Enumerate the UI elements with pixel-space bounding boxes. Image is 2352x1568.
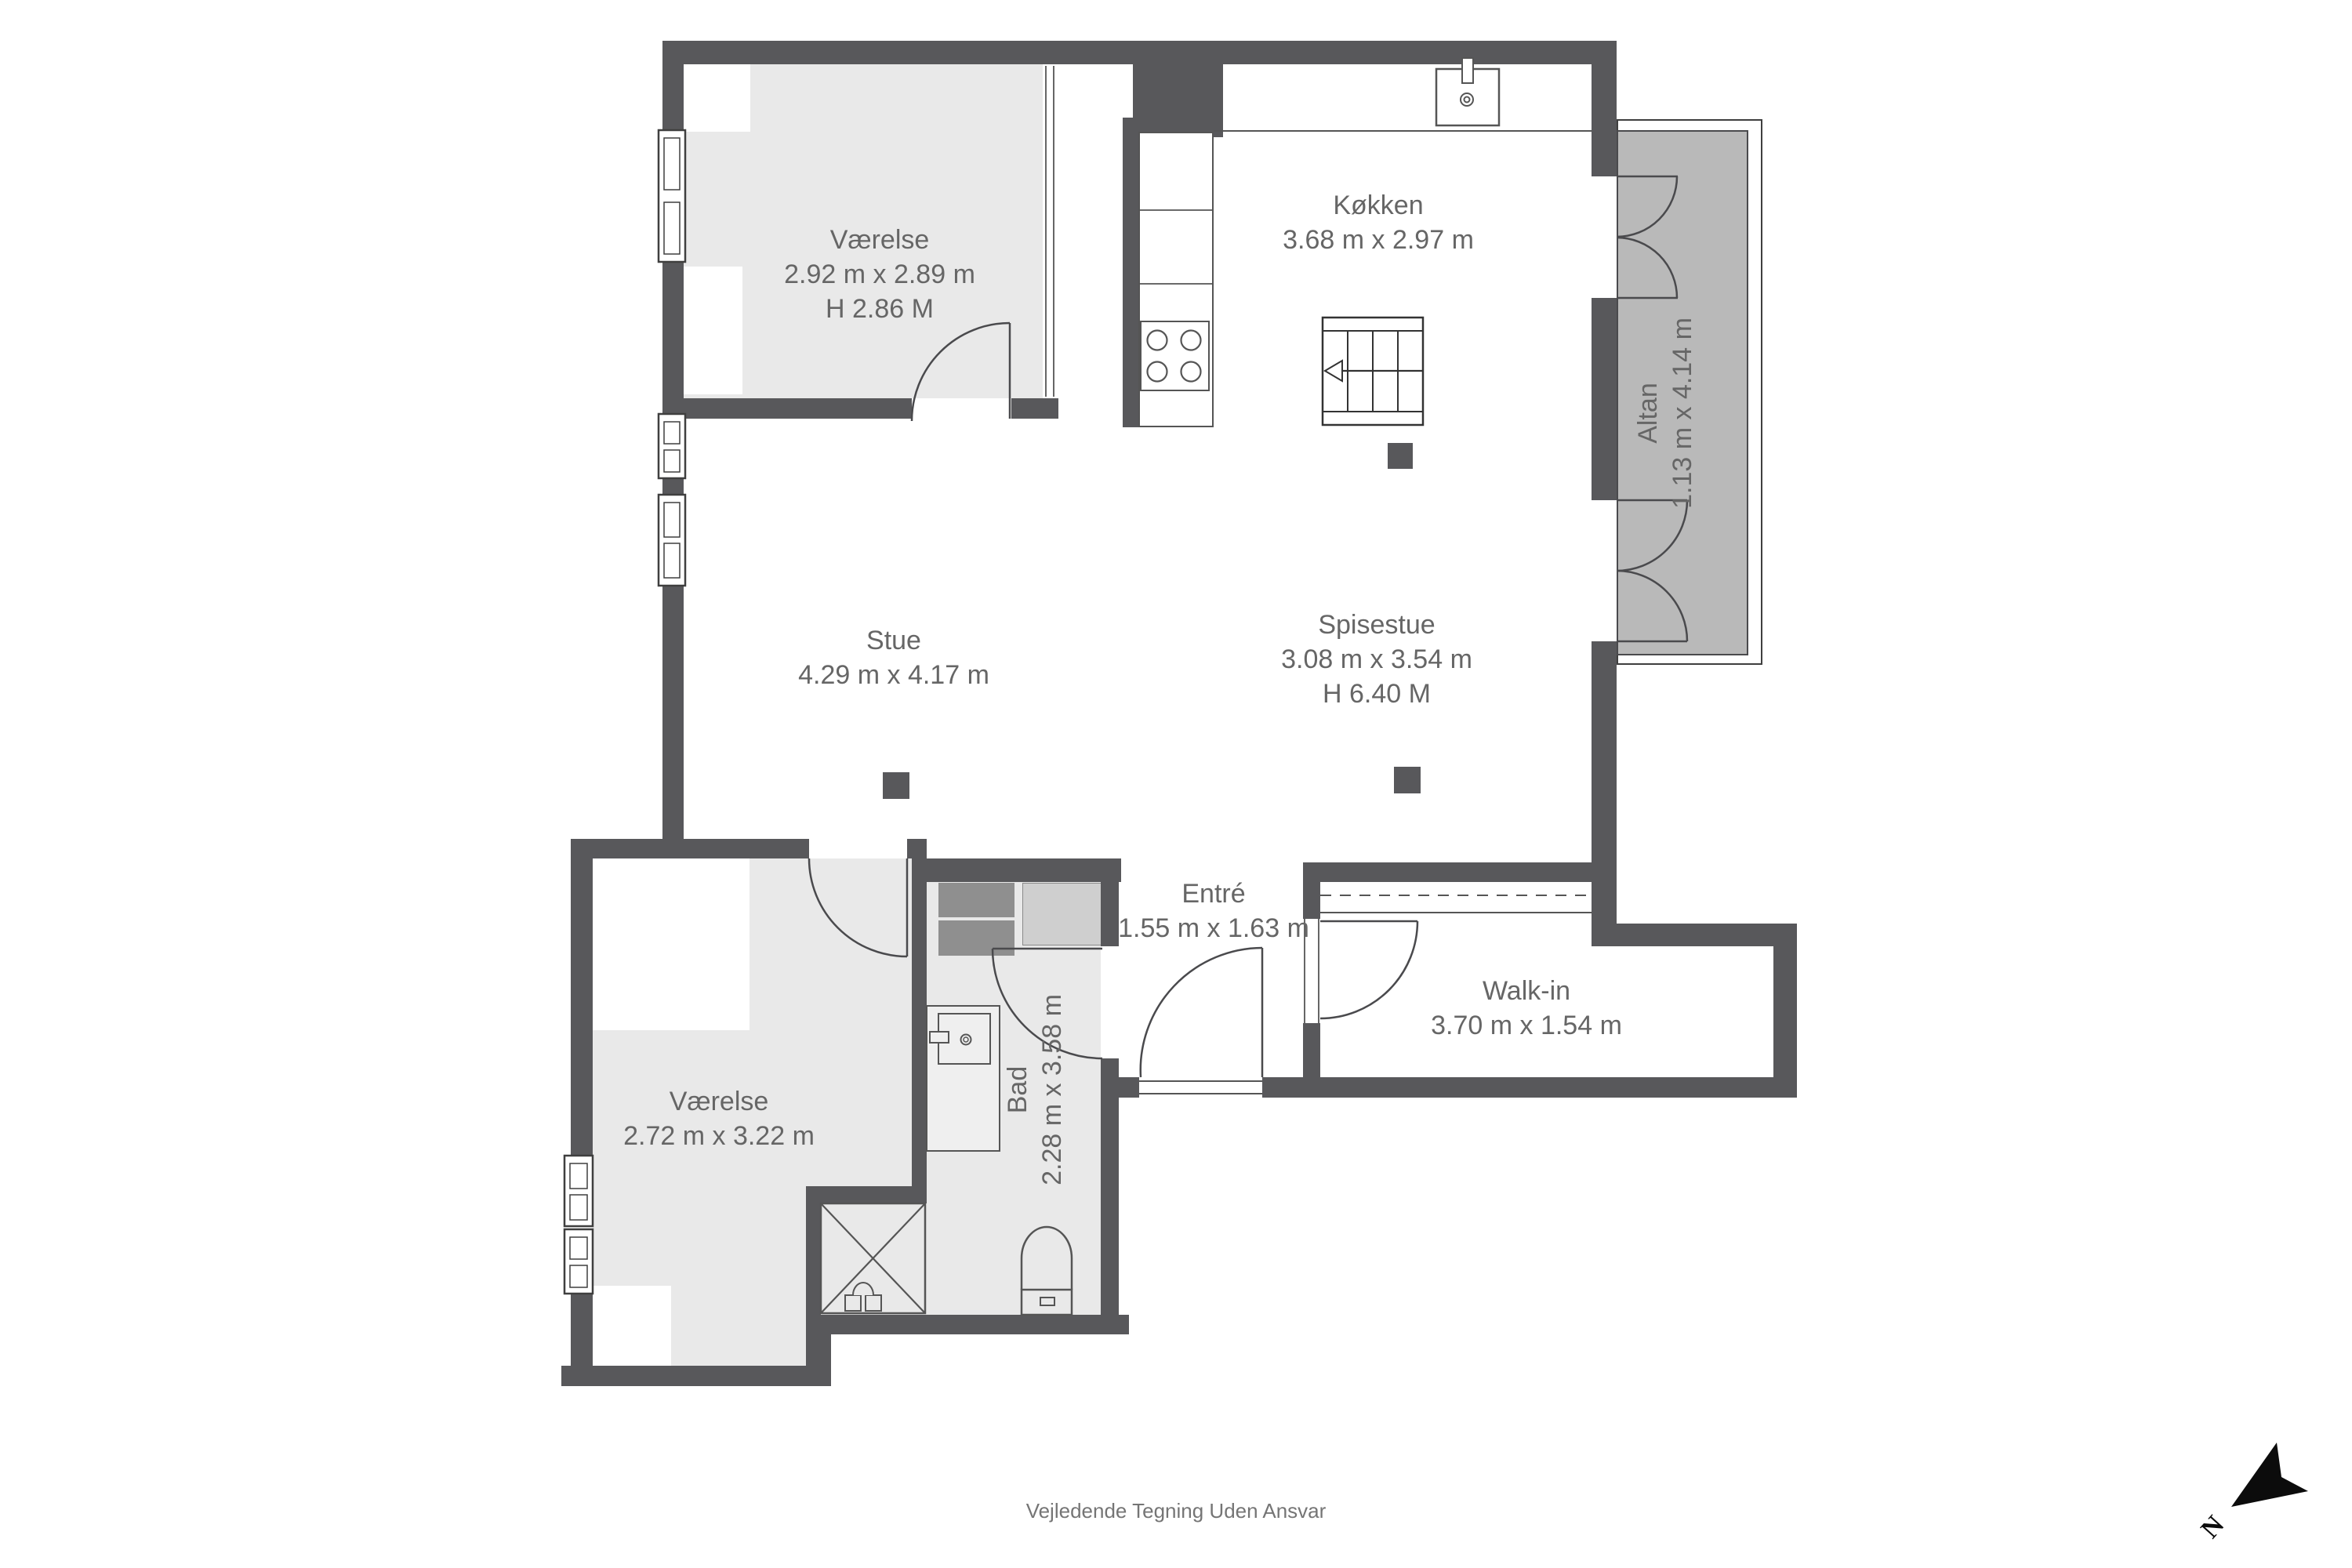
room-dims: 2.92 m x 2.89 m xyxy=(723,257,1036,292)
room-label-entre: Entré 1.55 m x 1.63 m xyxy=(1096,877,1331,946)
room-dims: 3.08 m x 3.54 m xyxy=(1220,642,1534,677)
room-label-vaerelse-bottom: Værelse 2.72 m x 3.22 m xyxy=(562,1084,876,1153)
room-label-bad: Bad 2.28 m x 3.58 m xyxy=(988,972,1082,1207)
room-name: Værelse xyxy=(723,223,1036,257)
column xyxy=(1394,767,1421,793)
wall-segment xyxy=(662,477,684,496)
furniture-patch xyxy=(593,858,750,1030)
room-label-altan: Altan 1.13 m x 4.14 m xyxy=(1618,296,1712,531)
wall-segment xyxy=(1101,1058,1119,1334)
wall-segment xyxy=(912,858,1121,882)
room-fill-bad-shower-nook xyxy=(821,1203,927,1315)
wall-segment xyxy=(1101,1077,1139,1098)
shaft-block xyxy=(938,883,1014,917)
shaft-block xyxy=(938,920,1014,956)
wall-segment xyxy=(806,1186,927,1203)
room-label-stue: Stue 4.29 m x 4.17 m xyxy=(737,623,1051,692)
furniture-patch xyxy=(593,1286,671,1366)
room-name: Stue xyxy=(737,623,1051,658)
room-dims: 2.72 m x 3.22 m xyxy=(562,1119,876,1153)
wall-segment xyxy=(1592,298,1617,500)
room-ceiling: H 2.86 M xyxy=(723,292,1036,326)
column xyxy=(1388,443,1413,469)
room-name: Værelse xyxy=(562,1084,876,1119)
wall-segment xyxy=(662,260,684,416)
wall-segment xyxy=(1011,398,1058,419)
room-dims: 3.68 m x 2.97 m xyxy=(1221,223,1535,257)
room-dims: 1.55 m x 1.63 m xyxy=(1096,911,1331,946)
room-name: Altan xyxy=(1631,383,1665,444)
wall-segment xyxy=(806,1315,1129,1334)
disclaimer-text: Vejledende Tegning Uden Ansvar xyxy=(0,1499,2352,1523)
room-label-vaerelse-top: Værelse 2.92 m x 2.89 m H 2.86 M xyxy=(723,223,1036,326)
room-name: Walk-in xyxy=(1370,974,1683,1008)
wall-segment xyxy=(1123,118,1138,427)
kitchen-sink xyxy=(1214,58,1592,131)
wall-segment xyxy=(1592,641,1617,946)
sliding-door xyxy=(1043,64,1057,398)
wall-segment xyxy=(1262,1077,1797,1098)
kitchen-counter xyxy=(1138,132,1214,427)
room-name: Entré xyxy=(1096,877,1331,911)
wall-segment xyxy=(907,839,927,858)
room-label-spisestue: Spisestue 3.08 m x 3.54 m H 6.40 M xyxy=(1220,608,1534,711)
front-door-threshold xyxy=(1139,1077,1262,1098)
wall-segment xyxy=(1592,924,1797,946)
floor-plan-page: { "rooms": { "vaerelse_top": {"name": "V… xyxy=(0,0,2352,1568)
wall-segment xyxy=(1592,63,1617,176)
wall-segment xyxy=(806,1186,821,1335)
room-name: Køkken xyxy=(1221,188,1535,223)
room-dims: 3.70 m x 1.54 m xyxy=(1370,1008,1683,1043)
wall-segment xyxy=(1133,41,1223,137)
room-dims: 1.13 m x 4.14 m xyxy=(1665,318,1700,509)
wall-segment xyxy=(571,839,809,858)
room-dims: 4.29 m x 4.17 m xyxy=(737,658,1051,692)
room-dims: 2.28 m x 3.58 m xyxy=(1035,994,1069,1185)
stairs xyxy=(1323,318,1423,425)
room-name: Bad xyxy=(1000,1066,1035,1114)
compass-icon: N xyxy=(2195,1443,2308,1544)
wall-segment xyxy=(912,858,927,1190)
wall-segment xyxy=(662,584,684,839)
room-name: Spisestue xyxy=(1220,608,1534,642)
column xyxy=(883,772,909,799)
wall-segment xyxy=(1303,1023,1320,1077)
wall-segment xyxy=(1773,924,1797,1098)
closet-lines xyxy=(1320,895,1592,913)
wall-segment xyxy=(1303,862,1592,882)
room-ceiling: H 6.40 M xyxy=(1220,677,1534,711)
furniture-patch xyxy=(684,64,750,132)
wall-segment xyxy=(561,1366,831,1386)
room-label-koekken: Køkken 3.68 m x 2.97 m xyxy=(1221,188,1535,257)
wall-segment xyxy=(662,398,912,419)
wall-segment xyxy=(806,1315,831,1386)
wall-segment xyxy=(662,64,684,132)
room-label-walk-in: Walk-in 3.70 m x 1.54 m xyxy=(1370,974,1683,1043)
